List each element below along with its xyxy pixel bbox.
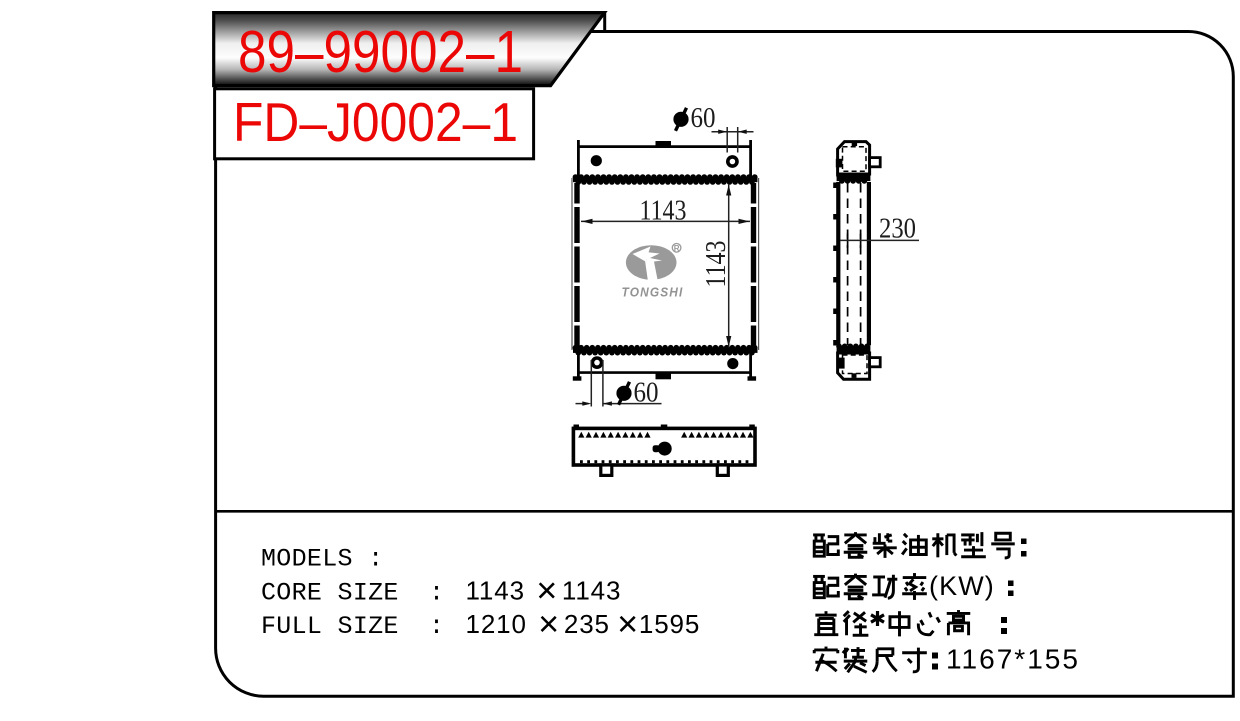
svg-text:1143: 1143: [701, 241, 732, 288]
svg-text:MODELS :: MODELS :: [261, 545, 383, 574]
svg-text:60: 60: [634, 377, 659, 408]
svg-text:(KW): (KW): [929, 571, 995, 601]
svg-text:230: 230: [879, 214, 916, 245]
svg-text:60: 60: [691, 103, 716, 134]
svg-text:89–99002–1: 89–99002–1: [238, 18, 523, 85]
svg-text:FD–J0002–1: FD–J0002–1: [233, 91, 518, 153]
svg-text:1167*155: 1167*155: [946, 644, 1080, 675]
svg-text:TONGSHI: TONGSHI: [622, 286, 684, 300]
svg-text:R: R: [674, 244, 680, 253]
